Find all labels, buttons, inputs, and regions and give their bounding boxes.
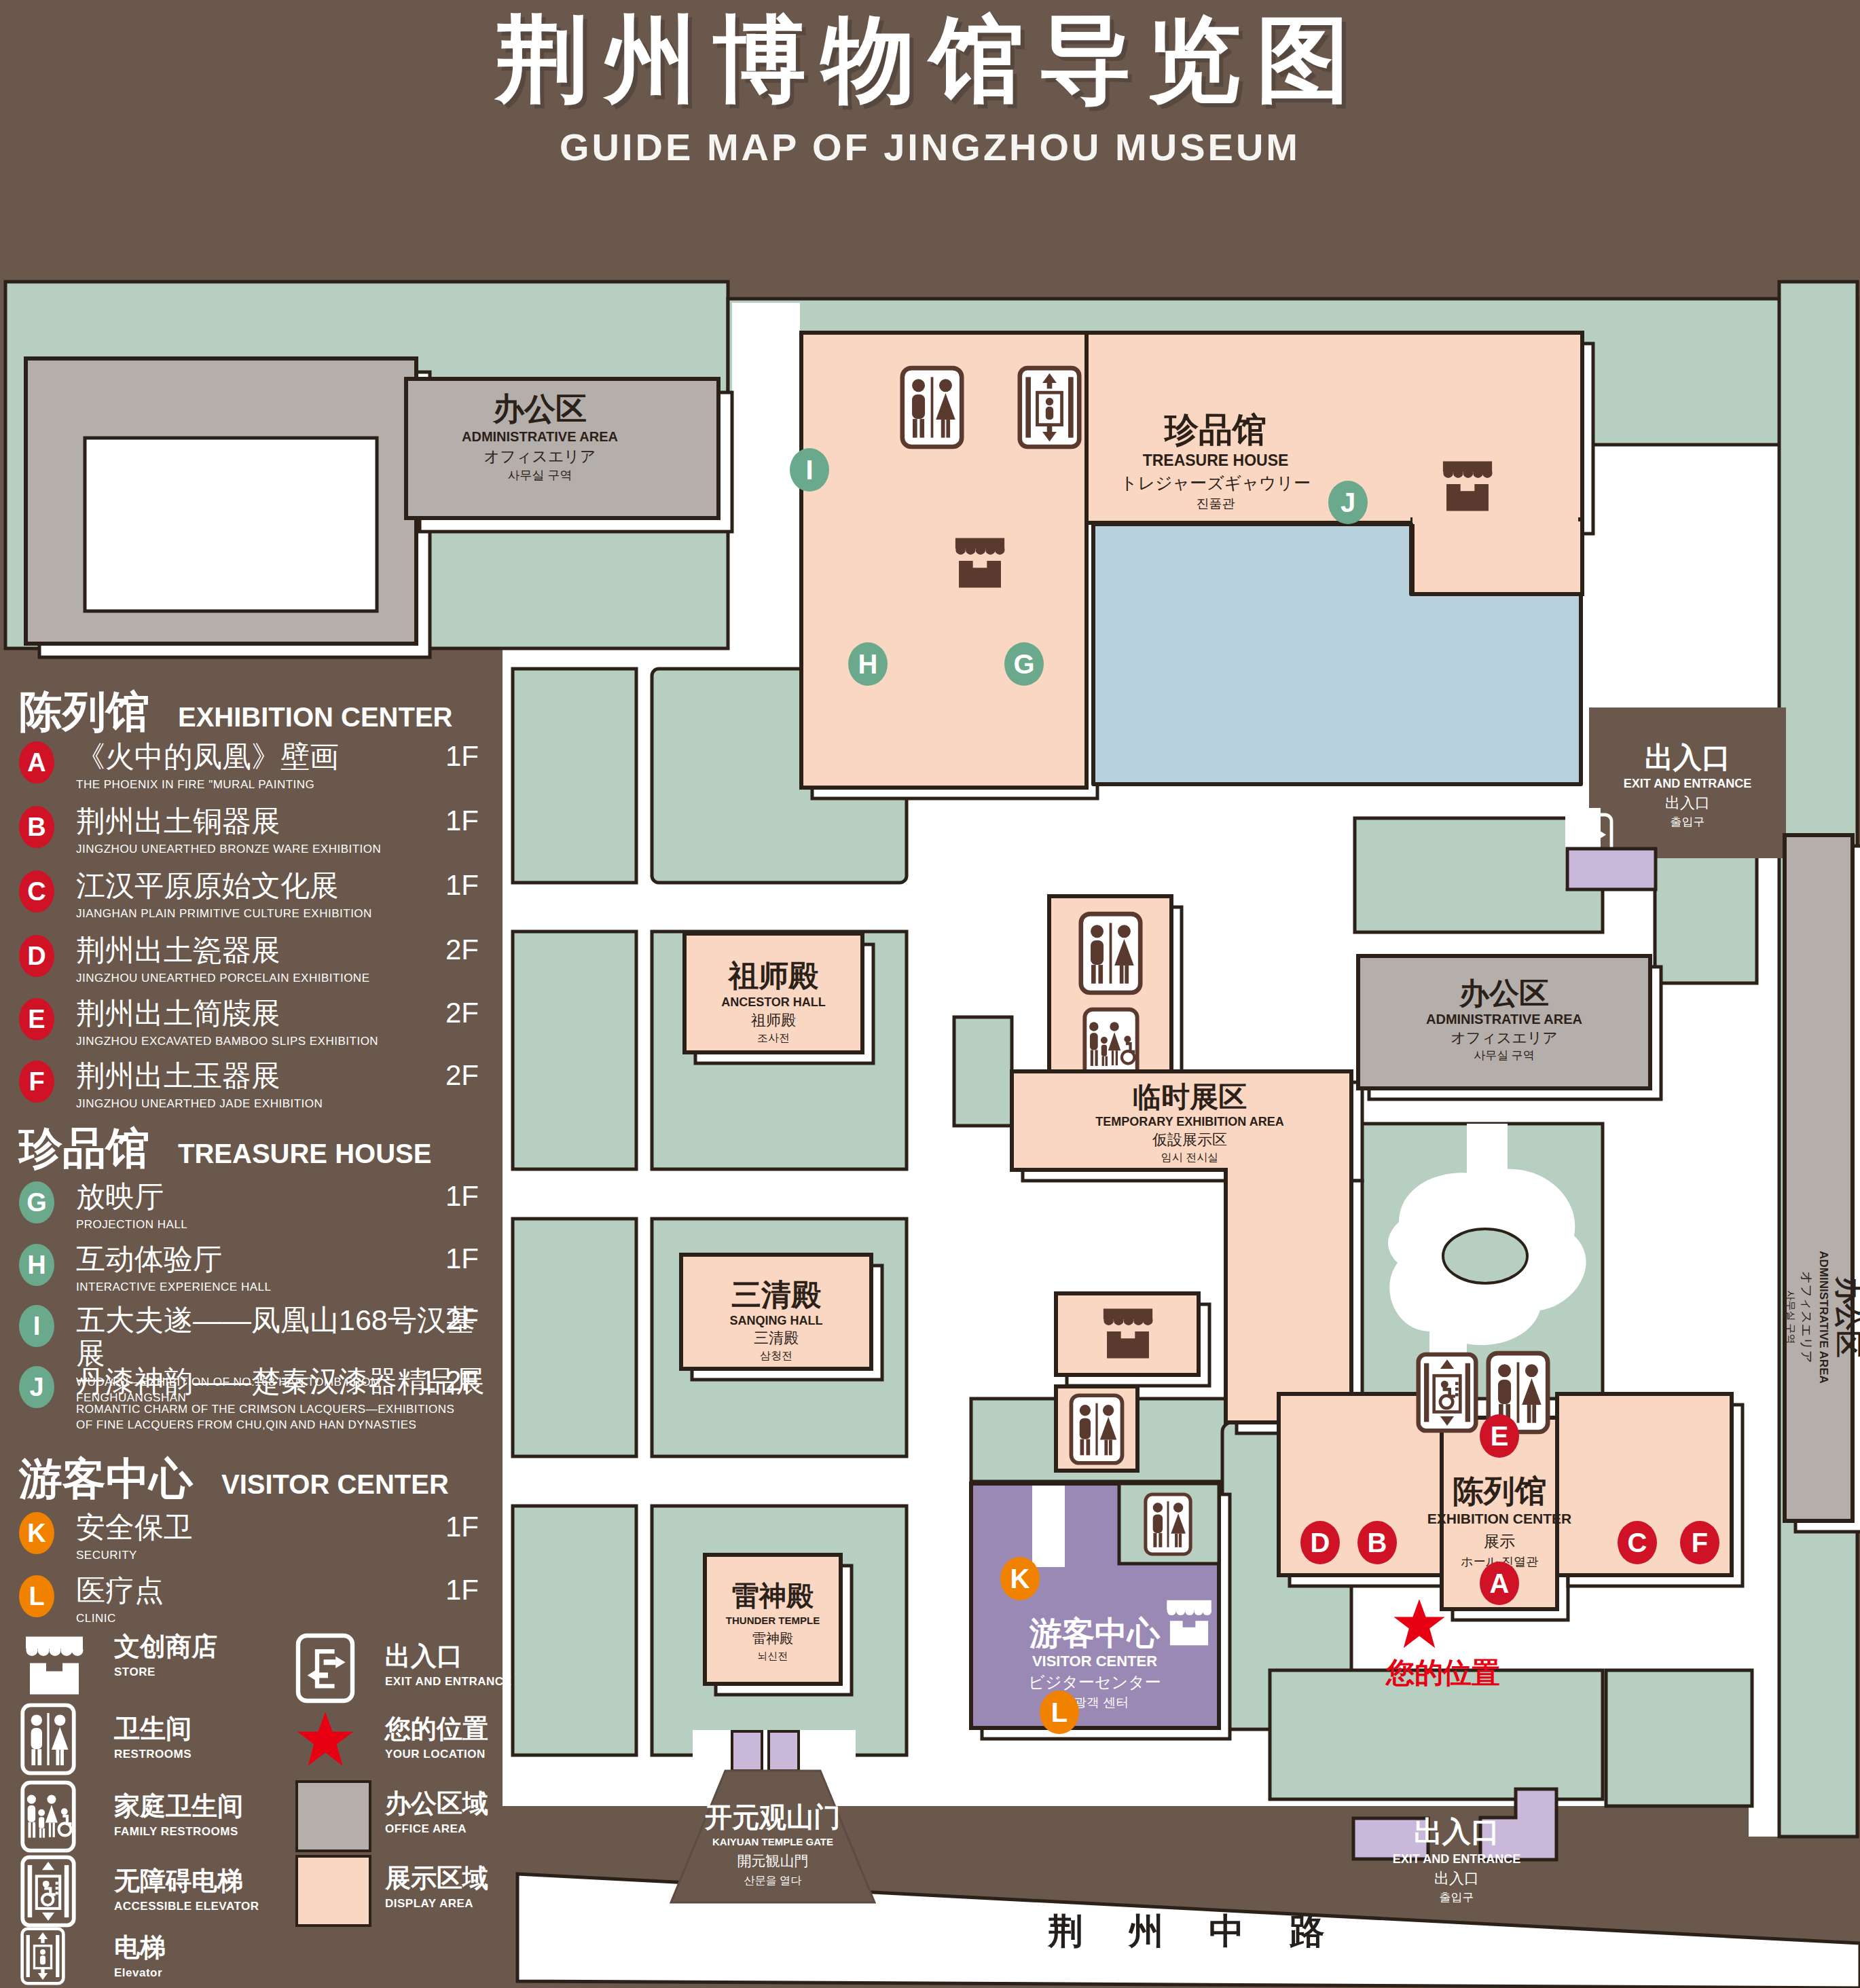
marker-L: L bbox=[1040, 1691, 1079, 1734]
legend-item-G: G 放映厅 PROJECTION HALL 1F bbox=[19, 1180, 498, 1233]
key-your-location: 您的位置 YOUR LOCATION bbox=[295, 1706, 488, 1761]
marker-C: C bbox=[1618, 1521, 1657, 1564]
temporary-label-zh: 临时展区 bbox=[1133, 1081, 1247, 1113]
temporary-restroom-icon bbox=[1071, 1395, 1122, 1462]
svg-text:E: E bbox=[1491, 1421, 1509, 1451]
gate-label-zh: 开元观山门 bbox=[704, 1802, 841, 1832]
key-display-area: 展示区域 DISPLAY AREA bbox=[295, 1855, 488, 1911]
treasure-label-kr: 진품관 bbox=[1197, 496, 1235, 511]
admin-east-label-kr: 사무실 구역 bbox=[1785, 1290, 1797, 1344]
svg-text:K: K bbox=[1010, 1564, 1030, 1594]
section-title-en: EXHIBITION CENTER bbox=[178, 702, 452, 732]
svg-text:B: B bbox=[1368, 1528, 1387, 1558]
temporary-label-jp: 仮設展示区 bbox=[1152, 1131, 1227, 1148]
marker-D: D bbox=[1300, 1521, 1340, 1564]
ancestor-label-en: ANCESTOR HALL bbox=[721, 995, 826, 1009]
svg-text:A: A bbox=[1490, 1568, 1510, 1598]
key-accessible-elevator: 无障碍电梯 ACCESSIBLE ELEVATOR bbox=[20, 1855, 259, 1913]
ancestor-label-zh: 祖师殿 bbox=[727, 959, 819, 992]
exit-south-label-zh: 出入口 bbox=[1414, 1816, 1499, 1847]
ancestor-label-kr: 조사전 bbox=[757, 1032, 790, 1044]
exit-south-label-jp: 出入口 bbox=[1434, 1870, 1479, 1887]
exit-south-label-kr: 출입구 bbox=[1440, 1891, 1474, 1904]
building-thunder-temple: 雷神殿 THUNDER TEMPLE 雷神殿 뇌신전 bbox=[705, 1555, 852, 1695]
badge-L: L bbox=[19, 1575, 54, 1617]
sanqing-label-kr: 삼청전 bbox=[760, 1350, 792, 1361]
legend-section-treasure-house: 珍品馆TREASURE HOUSE bbox=[19, 1119, 431, 1178]
elevator-icon bbox=[20, 1927, 65, 1985]
store-icon bbox=[20, 1633, 88, 1698]
marker-A: A bbox=[1480, 1562, 1519, 1605]
legend-item-F: F 荆州出土玉器展 JINGZHOU UNEARTHED JADE EXHIBI… bbox=[19, 1059, 498, 1112]
badge-H: H bbox=[19, 1244, 54, 1286]
admin-nw-label-kr: 사무실 구역 bbox=[507, 468, 572, 482]
treasure-label-en: TREASURE HOUSE bbox=[1143, 452, 1289, 469]
svg-text:F: F bbox=[1692, 1528, 1708, 1558]
marker-G: G bbox=[1004, 642, 1044, 686]
key-elevator: 电梯 Elevator bbox=[20, 1927, 166, 1980]
thunder-label-zh: 雷神殿 bbox=[732, 1581, 814, 1610]
road-label: 荆 州 中 路 bbox=[1047, 1911, 1342, 1951]
sanqing-label-jp: 三清殿 bbox=[754, 1329, 799, 1346]
legend-item-K: K 安全保卫 SECURITY 1F bbox=[19, 1511, 498, 1564]
key-exit: 出入口 EXIT AND ENTRANCE bbox=[295, 1633, 511, 1689]
treasure-label-zh: 珍品馆 bbox=[1163, 411, 1266, 449]
marker-H: H bbox=[848, 642, 888, 686]
admin-mid-label-jp: オフィスエリア bbox=[1451, 1029, 1558, 1046]
treasure-restroom-icon bbox=[902, 368, 962, 447]
building-admin-east: 办公区 ADMINISTRATIVE AREA オフィスエリア 사무실 구역 bbox=[1785, 835, 1860, 1532]
poster-header: 荆州博物馆导览图 GUIDE MAP OF JINGZHOU MUSEUM bbox=[0, 0, 1860, 169]
exit-icon bbox=[295, 1633, 355, 1704]
exhibition-label-jp: 展示 bbox=[1484, 1532, 1515, 1550]
svg-text:D: D bbox=[1311, 1528, 1330, 1558]
restrooms-icon bbox=[20, 1703, 76, 1775]
key-family-restrooms: 家庭卫生间 FAMILY RESTROOMS bbox=[20, 1780, 243, 1839]
svg-text:I: I bbox=[805, 455, 813, 485]
temporary-label-kr: 임시 전시실 bbox=[1161, 1152, 1218, 1163]
office-area-swatch bbox=[295, 1780, 371, 1852]
svg-text:G: G bbox=[1013, 649, 1034, 679]
gate-label-en: KAIYUAN TEMPLE GATE bbox=[712, 1836, 833, 1847]
thunder-label-kr: 뇌신전 bbox=[758, 1650, 788, 1661]
treasure-label-jp: トレジャーズギャウリー bbox=[1120, 473, 1311, 492]
exhibition-accessible-elevator-icon bbox=[1419, 1355, 1476, 1431]
badge-F: F bbox=[19, 1061, 54, 1103]
visitor-label-zh: 游客中心 bbox=[1029, 1615, 1161, 1651]
admin-east-label-en: ADMINISTRATIVE AREA bbox=[1817, 1251, 1830, 1384]
marker-E: E bbox=[1480, 1414, 1519, 1458]
admin-mid-label-kr: 사무실 구역 bbox=[1474, 1049, 1535, 1062]
svg-text:C: C bbox=[1628, 1528, 1647, 1558]
badge-I: I bbox=[19, 1305, 54, 1347]
building-ancestor-hall: 祖师殿 ANCESTOR HALL 祖师殿 조사전 bbox=[685, 934, 873, 1063]
marker-K: K bbox=[1000, 1557, 1040, 1600]
exit-east-label-en: EXIT AND ENTRANCE bbox=[1624, 777, 1751, 790]
ancestor-label-jp: 祖师殿 bbox=[751, 1012, 796, 1029]
gate-label-kr: 산문을 열다 bbox=[744, 1875, 801, 1886]
guide-map-poster: 荆州博物馆导览图 GUIDE MAP OF JINGZHOU MUSEUM bbox=[0, 0, 1860, 1988]
temporary-label-en: TEMPORARY EXHIBITION AREA bbox=[1095, 1115, 1283, 1128]
svg-text:L: L bbox=[1051, 1697, 1068, 1727]
sanqing-label-en: SANQING HALL bbox=[730, 1314, 823, 1327]
badge-G: G bbox=[19, 1181, 54, 1223]
marker-J: J bbox=[1328, 481, 1368, 524]
legend-item-D: D 荆州出土瓷器展 JINGZHOU UNEARTHED PORCELAIN E… bbox=[19, 934, 498, 987]
section-title-zh: 陈列馆 bbox=[19, 687, 149, 736]
legend-item-L: L 医疗点 CLINIC 1F bbox=[19, 1574, 498, 1627]
key-office-area: 办公区域 OFFICE AREA bbox=[295, 1780, 488, 1836]
exit-south: 出入口 EXIT AND ENTRANCE 出入口 출입구 bbox=[1353, 1789, 1556, 1904]
legend-section-exhibition-center: 陈列馆EXHIBITION CENTER bbox=[19, 682, 452, 741]
family-restrooms-icon bbox=[20, 1780, 76, 1853]
legend-item-A: A 《火中的凤凰》壁画 THE PHOENIX IN FIRE "MURAL P… bbox=[19, 740, 498, 793]
legend-item-J: J 丹漆神韵——楚秦汉漆器精品展 ROMANTIC CHARM OF THE C… bbox=[19, 1365, 498, 1433]
building-visitor-center: 游客中心 VISITOR CENTER ビジターセンター 관광객 센터 bbox=[971, 1484, 1230, 1739]
sanqing-label-zh: 三清殿 bbox=[731, 1278, 822, 1311]
exit-east-label-kr: 출입구 bbox=[1671, 815, 1705, 828]
central-family-restroom-icon bbox=[1084, 1010, 1137, 1079]
admin-mid-label-en: ADMINISTRATIVE AREA bbox=[1426, 1012, 1582, 1027]
treasure-elevator-icon bbox=[1020, 368, 1079, 447]
legend-item-H: H 互动体验厅 INTERACTIVE EXPERIENCE HALL 1F bbox=[19, 1242, 498, 1295]
campus-map: 办公区 ADMINISTRATIVE AREA オフィスエリア 사무실 구역 珍… bbox=[0, 0, 1860, 1988]
your-location-label: 您的位置 bbox=[1385, 1657, 1500, 1689]
legend-item-C: C 江汉平原原始文化展 JIANGHAN PLAIN PRIMITIVE CUL… bbox=[19, 869, 498, 922]
exit-east-label-zh: 出入口 bbox=[1645, 741, 1730, 773]
accessible-elevator-icon bbox=[20, 1855, 76, 1928]
visitor-restroom-icon bbox=[1146, 1494, 1190, 1554]
exit-south-label-en: EXIT AND ENTRANCE bbox=[1393, 1852, 1520, 1866]
key-restrooms: 卫生间 RESTROOMS bbox=[20, 1703, 192, 1761]
badge-J: J bbox=[19, 1366, 54, 1408]
admin-nw-label-zh: 办公区 bbox=[492, 391, 587, 426]
exit-east-label-jp: 出入口 bbox=[1665, 794, 1710, 811]
svg-text:J: J bbox=[1341, 487, 1355, 517]
badge-A: A bbox=[19, 741, 54, 784]
key-store: 文创商店 STORE bbox=[20, 1633, 217, 1679]
kaiyuan-temple-gate: 开元观山门 KAIYUAN TEMPLE GATE 開元観山門 산문을 열다 bbox=[671, 1730, 875, 1902]
marker-I: I bbox=[790, 448, 829, 492]
poster-title: 荆州博物馆导览图 bbox=[0, 12, 1860, 106]
badge-E: E bbox=[19, 998, 54, 1040]
thunder-label-jp: 雷神殿 bbox=[752, 1631, 793, 1646]
legend-item-E: E 荆州出土简牍展 JINGZHOU EXCAVATED BAMBOO SLIP… bbox=[19, 997, 498, 1050]
svg-text:H: H bbox=[858, 649, 878, 679]
badge-C: C bbox=[19, 870, 54, 913]
exhibition-label-en: EXHIBITION CENTER bbox=[1427, 1511, 1571, 1526]
admin-east-label-zh: 办公区 bbox=[1834, 1276, 1860, 1358]
marker-B: B bbox=[1357, 1521, 1397, 1564]
visitor-label-jp: ビジターセンター bbox=[1028, 1673, 1161, 1691]
badge-B: B bbox=[19, 806, 54, 848]
poster-subtitle: GUIDE MAP OF JINGZHOU MUSEUM bbox=[0, 125, 1860, 169]
badge-D: D bbox=[19, 935, 54, 977]
admin-mid-label-zh: 办公区 bbox=[1458, 976, 1549, 1010]
gate-label-jp: 開元観山門 bbox=[737, 1853, 809, 1869]
marker-F: F bbox=[1680, 1521, 1719, 1564]
legend-section-visitor-center: 游客中心VISITOR CENTER bbox=[19, 1450, 449, 1509]
building-sanqing-hall: 三清殿 SANQING HALL 三清殿 삼청전 bbox=[681, 1255, 882, 1380]
thunder-label-en: THUNDER TEMPLE bbox=[726, 1615, 820, 1626]
central-restroom-icon bbox=[1081, 914, 1140, 993]
display-area-swatch bbox=[295, 1855, 371, 1927]
admin-nw-label-jp: オフィスエリア bbox=[484, 447, 596, 465]
your-location-star-icon bbox=[295, 1710, 355, 1769]
building-admin-middle: 办公区 ADMINISTRATIVE AREA オフィスエリア 사무실 구역 bbox=[1358, 956, 1661, 1099]
visitor-label-en: VISITOR CENTER bbox=[1032, 1653, 1157, 1670]
exhibition-label-zh: 陈列馆 bbox=[1453, 1473, 1546, 1509]
admin-nw-label-en: ADMINISTRATIVE AREA bbox=[462, 429, 618, 444]
legend-item-B: B 荆州出土铜器展 JINGZHOU UNEARTHED BRONZE WARE… bbox=[19, 805, 498, 858]
badge-K: K bbox=[19, 1512, 54, 1554]
white-path-cuts bbox=[732, 303, 800, 646]
admin-east-label-jp: オフィスエリア bbox=[1800, 1271, 1814, 1363]
